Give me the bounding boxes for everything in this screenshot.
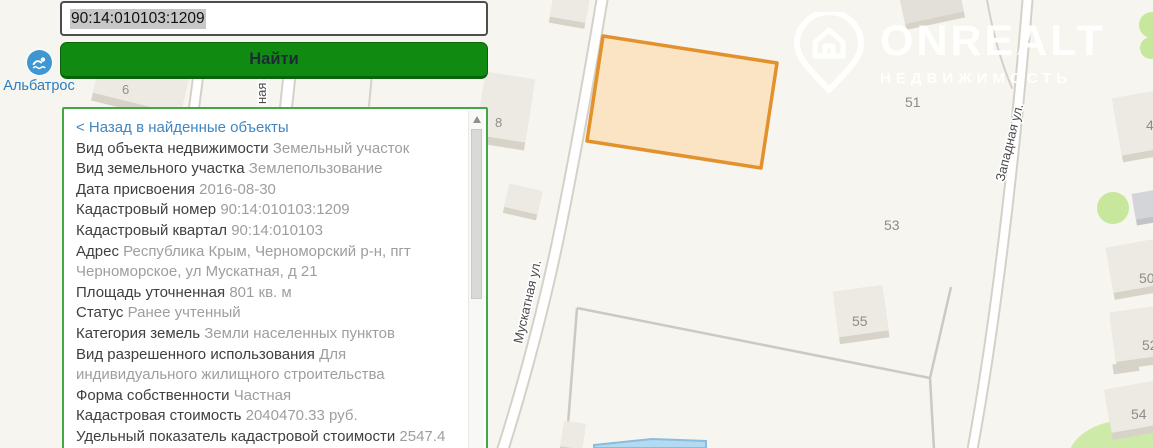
attribute-row: Площадь уточненная 801 кв. м bbox=[76, 283, 460, 304]
attribute-label: Удельный показатель кадастровой стоимост… bbox=[76, 428, 395, 445]
attribute-label: Категория земель bbox=[76, 325, 200, 342]
attribute-label: Вид объекта недвижимости bbox=[76, 140, 269, 157]
attribute-value: 90:14:010103:1209 bbox=[220, 201, 349, 218]
search-input-value: 90:14:010103:1209 bbox=[70, 9, 206, 29]
attribute-row: Вид объекта недвижимости Земельный участ… bbox=[76, 139, 460, 160]
attribute-value: Частная bbox=[234, 387, 291, 404]
attribute-row: Удельный показатель кадастровой стоимост… bbox=[76, 427, 460, 448]
attribute-label: Площадь уточненная bbox=[76, 284, 225, 301]
attribute-label: Форма собственности bbox=[76, 387, 230, 404]
parcel-number-label: 8 bbox=[495, 115, 502, 130]
tree-icon bbox=[1097, 192, 1129, 224]
attribute-label: Вид разрешенного использования bbox=[76, 346, 315, 363]
attribute-value: Земельный участок bbox=[273, 140, 410, 157]
parcel-number-label: 6 bbox=[122, 82, 129, 97]
attribute-row: Дата присвоения 2016-08-30 bbox=[76, 180, 460, 201]
attribute-value: 2016-08-30 bbox=[199, 181, 276, 198]
attribute-label: Адрес bbox=[76, 243, 119, 260]
parcel-number-label: 4 bbox=[1146, 117, 1153, 133]
parcel-number-label: 55 bbox=[852, 313, 868, 329]
attribute-label: Кадастровый номер bbox=[76, 201, 216, 218]
attribute-row: Адрес Республика Крым, Черноморский р-н,… bbox=[76, 242, 460, 283]
attribute-value: Республика Крым, Черноморский р-н, пгт Ч… bbox=[76, 243, 411, 281]
back-to-results-link[interactable]: < Назад в найденные объекты bbox=[76, 118, 289, 139]
parcel-number-label: 54 bbox=[1131, 406, 1147, 422]
attribute-value: Земли населенных пунктов bbox=[204, 325, 395, 342]
attribute-value: 2547.4 bbox=[399, 428, 445, 445]
find-button[interactable]: Найти bbox=[60, 42, 488, 79]
attribute-value: Землепользование bbox=[249, 160, 383, 177]
poi-label: Альбатрос bbox=[2, 78, 76, 94]
attribute-row: Кадастровый квартал 90:14:010103 bbox=[76, 221, 460, 242]
scroll-up-arrow-icon[interactable] bbox=[469, 111, 484, 127]
parcel-number-label: 51 bbox=[905, 94, 921, 110]
search-input[interactable]: 90:14:010103:1209 bbox=[60, 1, 488, 36]
attribute-label: Вид земельного участка bbox=[76, 160, 245, 177]
parcel-number-label: 53 bbox=[884, 217, 900, 233]
attribute-value: 90:14:010103 bbox=[231, 222, 323, 239]
attribute-label: Дата присвоения bbox=[76, 181, 195, 198]
attribute-row: Статус Ранее учтенный bbox=[76, 303, 460, 324]
attribute-row: Вид земельного участка Землепользование bbox=[76, 159, 460, 180]
object-info-panel: < Назад в найденные объекты Вид объекта … bbox=[62, 107, 488, 448]
object-info-content: < Назад в найденные объекты Вид объекта … bbox=[64, 109, 486, 448]
parcel-number-label: 50 bbox=[1139, 270, 1153, 286]
attribute-row: Кадастровая стоимость 2040470.33 руб. bbox=[76, 406, 460, 427]
attribute-row: Категория земель Земли населенных пункто… bbox=[76, 324, 460, 345]
panel-scrollbar[interactable] bbox=[468, 111, 484, 448]
attribute-list: Вид объекта недвижимости Земельный участ… bbox=[76, 139, 460, 448]
attribute-row: Вид разрешенного использования Для индив… bbox=[76, 345, 460, 386]
attribute-row: Кадастровый номер 90:14:010103:1209 bbox=[76, 200, 460, 221]
scrollbar-thumb[interactable] bbox=[471, 129, 482, 299]
attribute-label: Кадастровый квартал bbox=[76, 222, 227, 239]
parcel-number-label: 52 bbox=[1142, 337, 1153, 353]
attribute-value: 2040470.33 руб. bbox=[246, 407, 358, 424]
attribute-label: Кадастровая стоимость bbox=[76, 407, 241, 424]
attribute-label: Статус bbox=[76, 304, 123, 321]
attribute-value: 801 кв. м bbox=[229, 284, 291, 301]
attribute-value: Ранее учтенный bbox=[128, 304, 241, 321]
swimmer-icon bbox=[27, 50, 52, 75]
attribute-row: Форма собственности Частная bbox=[76, 386, 460, 407]
